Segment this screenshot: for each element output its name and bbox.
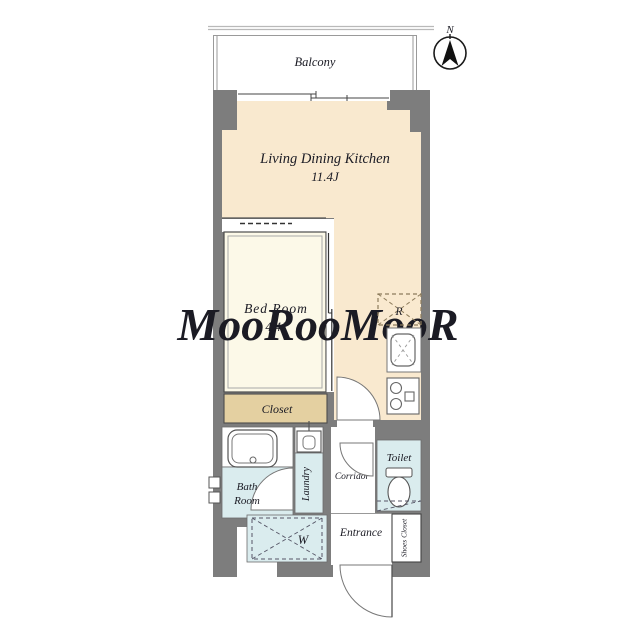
room-shoe-closet: Shoes Closet <box>392 514 421 562</box>
top-accent-line <box>208 27 434 30</box>
laundry-label: Laundry <box>301 467 312 502</box>
north-compass: N <box>434 24 466 69</box>
room-toilet: Toilet <box>377 440 421 511</box>
fridge-symbol: R <box>394 306 402 318</box>
north-arrow-icon <box>442 40 459 66</box>
balcony-sliding-door <box>237 90 390 101</box>
balcony: Balcony <box>213 35 417 90</box>
kitchen-stove <box>387 378 419 414</box>
room-laundry: Laundry <box>295 453 323 513</box>
closet-label: Closet <box>262 402 293 416</box>
bathroom-label-1: Bath <box>237 481 258 493</box>
ldk-area: 11.4J <box>311 169 340 184</box>
washer-space: W <box>247 515 327 562</box>
room-bathroom: Bath Room <box>222 427 293 518</box>
shoe-closet-label: Shoes Closet <box>400 518 409 557</box>
ldk-label: Living Dining Kitchen <box>259 151 390 167</box>
balcony-label: Balcony <box>295 55 336 69</box>
toilet-tank <box>386 468 412 477</box>
compass-north-label: N <box>445 24 454 36</box>
toilet-label: Toilet <box>387 452 413 464</box>
toilet-bowl <box>388 477 410 507</box>
washer-symbol: W <box>298 533 310 547</box>
partition-gap <box>222 219 334 232</box>
floor-plan-page: N Balcony Bed Room 4.4J <box>0 0 640 640</box>
bathroom-label-2: Room <box>233 495 260 507</box>
entrance-label: Entrance <box>339 527 382 539</box>
kitchen-sink <box>387 328 421 372</box>
room-closet: Closet <box>224 394 327 423</box>
entrance-door <box>340 565 392 617</box>
floor-plan: N Balcony Bed Room 4.4J <box>0 0 640 640</box>
